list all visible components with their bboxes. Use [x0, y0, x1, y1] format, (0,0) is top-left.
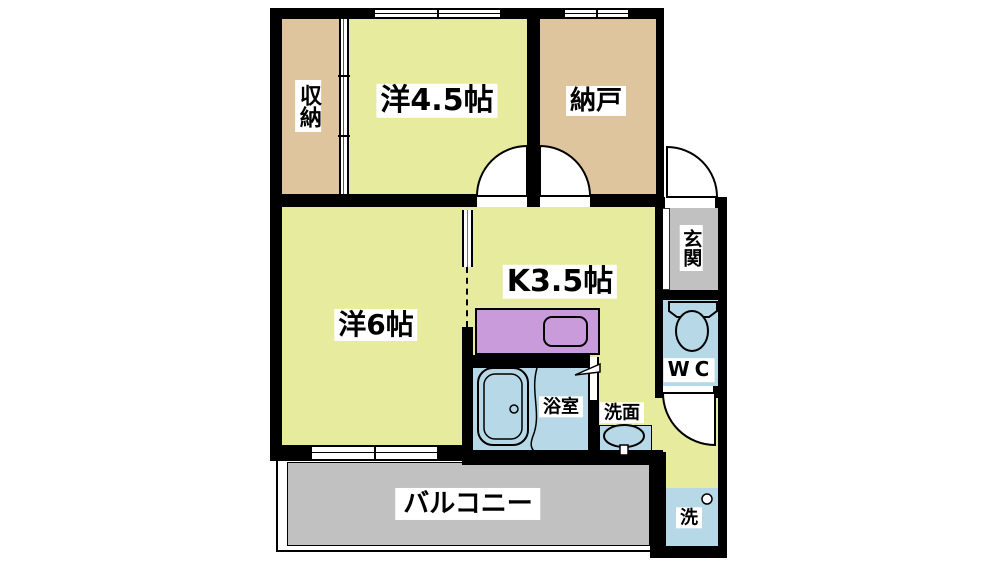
kitchen-sink-icon: [543, 316, 588, 347]
kitchen-counter: [475, 308, 600, 355]
door-swing-icon-entrance: [667, 147, 717, 197]
label-balcony: バルコニー: [395, 488, 540, 520]
label-laundry: 洗: [676, 507, 702, 528]
washbasin-counter: [599, 425, 652, 452]
wall-entrance-wc: [655, 290, 718, 300]
window-symbol-top-2: [565, 8, 628, 19]
label-western-4-5: 洋4.5帖: [376, 84, 497, 118]
wall-mid-horizontal: [270, 194, 663, 207]
wall-bath-top: [462, 355, 590, 368]
window-symbol-top-1: [375, 8, 500, 19]
sliding-door-symbol-closet: [339, 19, 349, 194]
wall-bath-right: [588, 398, 599, 452]
label-wc: WC: [664, 358, 715, 382]
doorway-wc: [663, 386, 713, 398]
label-washroom: 洗面: [600, 402, 644, 423]
wall-balcony-laundry: [650, 452, 666, 558]
wall-storeroom-right: [656, 8, 664, 199]
label-storeroom: 納戸: [566, 86, 626, 116]
wall-bottom-mid: [462, 450, 663, 465]
wall-entrance-left: [655, 208, 663, 300]
entrance-step: [662, 208, 670, 290]
floor-plan: 収納 洋4.5帖 納戸 K3.5帖 洋6帖 玄関 WC 浴室 洗面 洗 バルコニ…: [0, 0, 1000, 562]
opening-w6-kitchen: [462, 210, 473, 267]
doorway-storeroom: [540, 194, 590, 207]
wall-w45-storeroom: [527, 8, 540, 199]
label-entrance: 玄関: [680, 225, 703, 271]
wall-bottom-right: [650, 546, 727, 558]
opening-dashed-w6-kitchen: [466, 267, 468, 327]
window-symbol-balcony: [312, 445, 437, 461]
wall-right: [718, 197, 727, 558]
wall-wc-left: [655, 300, 663, 398]
bath-doorway: [588, 357, 599, 400]
label-western-6: 洋6帖: [334, 309, 417, 341]
label-closet: 収納: [295, 80, 321, 132]
wall-left: [270, 8, 282, 461]
doorway-western-4-5: [477, 194, 527, 207]
wall-w6-kitchen: [462, 327, 473, 461]
doorway-entrance: [665, 197, 715, 208]
label-kitchen: K3.5帖: [503, 265, 617, 299]
label-bathroom: 浴室: [539, 396, 583, 417]
